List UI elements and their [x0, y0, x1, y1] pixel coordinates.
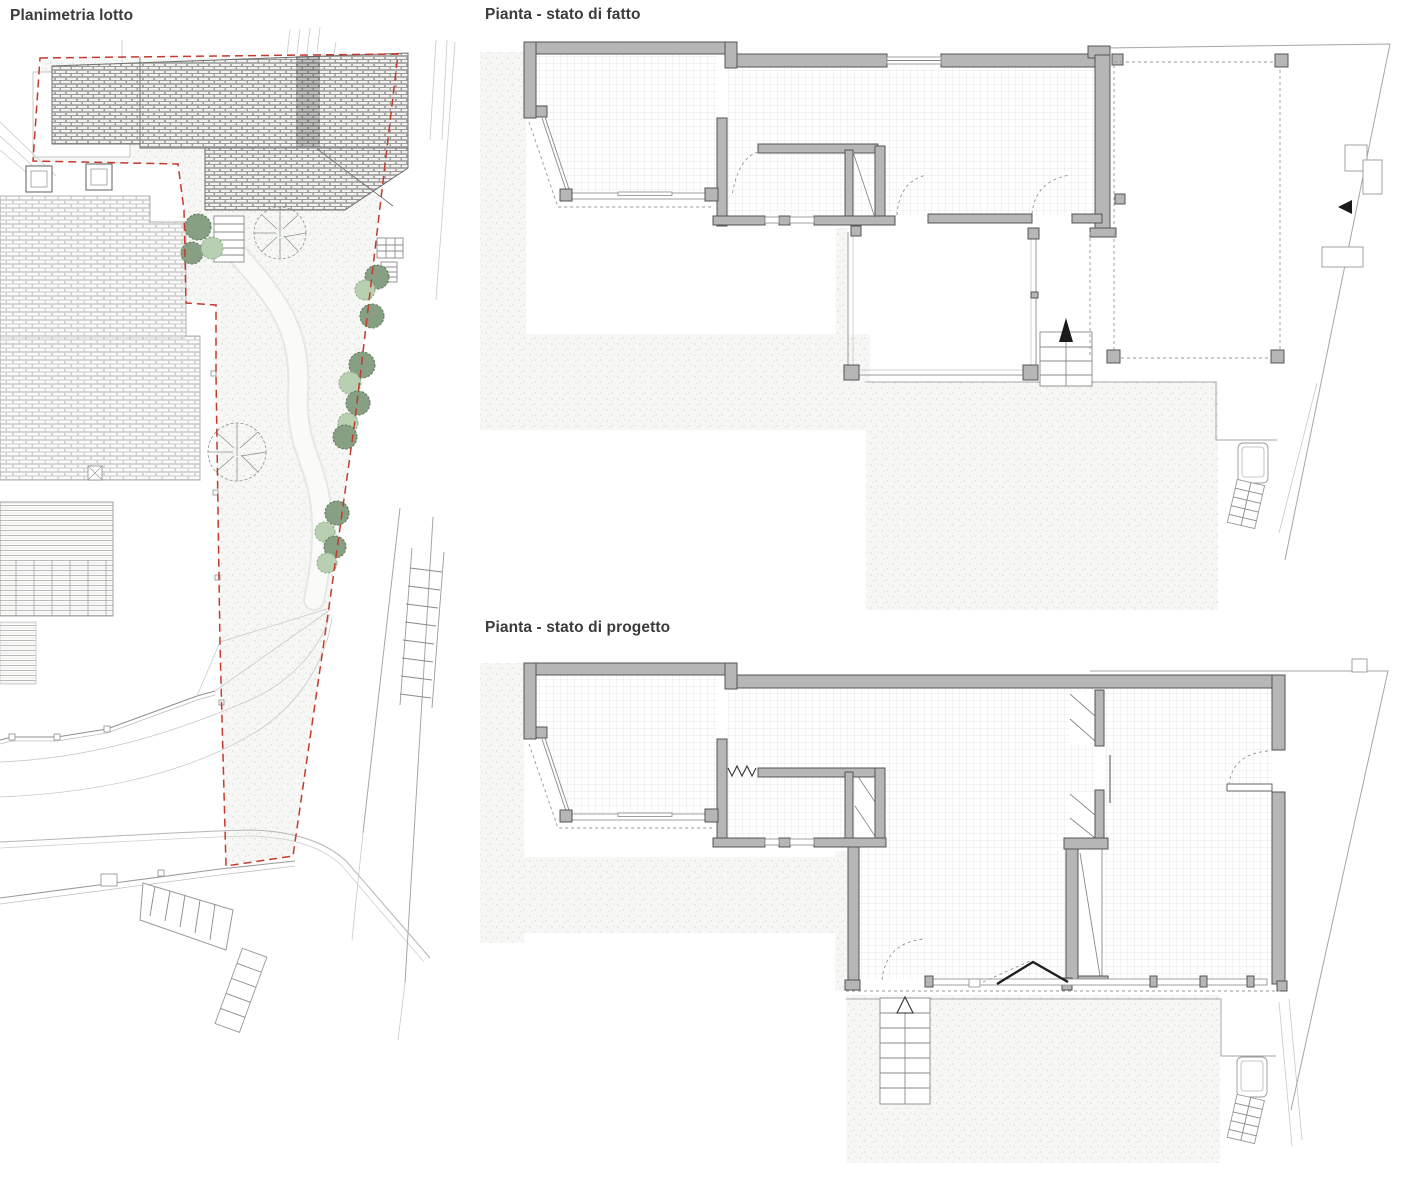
drawings-canvas — [0, 0, 1403, 1177]
building-striped-roof — [0, 502, 113, 684]
roof-skylights — [26, 164, 112, 192]
existing-canopy — [1090, 54, 1288, 363]
plan-existing-drawing — [480, 42, 1390, 610]
site-plan-title: Planimetria lotto — [10, 7, 133, 25]
project-floor — [536, 675, 1272, 979]
existing-plan-title: Pianta - stato di fatto — [485, 6, 641, 24]
project-stairs — [880, 997, 930, 1104]
existing-stairs — [1040, 318, 1092, 386]
drawing-sheet: Planimetria lotto Pianta - stato di fatt… — [0, 0, 1403, 1177]
site-plan-drawing — [0, 27, 455, 1040]
pergola — [140, 883, 267, 1032]
utility-lines — [287, 27, 336, 55]
roof-light-tiles — [0, 196, 200, 480]
project-plan-title: Pianta - stato di progetto — [485, 619, 670, 637]
plan-project-drawing — [480, 659, 1388, 1163]
existing-porch — [844, 226, 1039, 380]
